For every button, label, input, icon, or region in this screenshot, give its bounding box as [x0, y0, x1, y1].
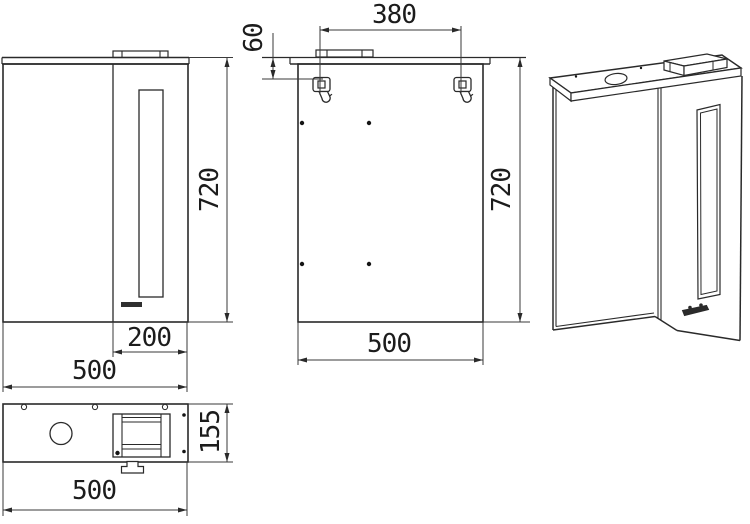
front-view-top-panel: [2, 58, 189, 65]
top-view-light-fixture: [113, 414, 170, 457]
front-view-carcass: [3, 64, 188, 322]
hanger-offset-dim-label: 60: [239, 23, 269, 52]
hanger-span-dimension: 380: [320, 0, 461, 95]
top-view-panel: [3, 404, 188, 462]
perspective-side-niche: [697, 105, 720, 300]
mirror-cabinet-drawing: 720 200 500: [0, 0, 750, 524]
hanger-offset-dimension: 60: [239, 23, 323, 79]
back-width-dimension: 500: [298, 322, 483, 365]
wall-hanger-left: [313, 78, 332, 103]
back-width-dim-label: 500: [367, 329, 411, 359]
back-view: 380 60 720 500: [239, 0, 530, 365]
front-view: 720 200 500: [2, 51, 233, 392]
back-view-top-panel: [262, 58, 526, 65]
front-height-dim-label: 720: [195, 168, 225, 212]
front-door-width-dimension: 200: [113, 322, 187, 392]
perspective-view: [550, 54, 742, 341]
wall-hanger-right: [454, 78, 473, 103]
back-view-light-fixture: [316, 50, 373, 57]
hanger-span-dim-label: 380: [372, 0, 416, 30]
back-view-screw-holes: [300, 121, 371, 266]
front-view-door-niche: [139, 90, 163, 297]
top-width-dimension: 500: [3, 462, 187, 516]
top-view: 155 500: [3, 404, 233, 516]
front-width-dim-label: 500: [72, 356, 116, 386]
perspective-door-handle: [683, 303, 709, 315]
depth-dim-label: 155: [196, 410, 226, 454]
back-height-dim-label: 720: [487, 168, 517, 212]
front-view-door-handle: [121, 302, 142, 307]
technical-drawing-page: 720 200 500: [0, 0, 750, 524]
front-door-width-dim-label: 200: [127, 323, 171, 353]
mounting-clip: [122, 462, 144, 474]
front-view-light-fixture: [113, 51, 168, 58]
depth-dimension: 155: [188, 404, 233, 462]
wiring-hole: [50, 423, 72, 445]
back-height-dimension: 720: [483, 58, 530, 322]
top-width-dim-label: 500: [72, 476, 116, 506]
front-height-dimension: 720: [188, 58, 233, 323]
